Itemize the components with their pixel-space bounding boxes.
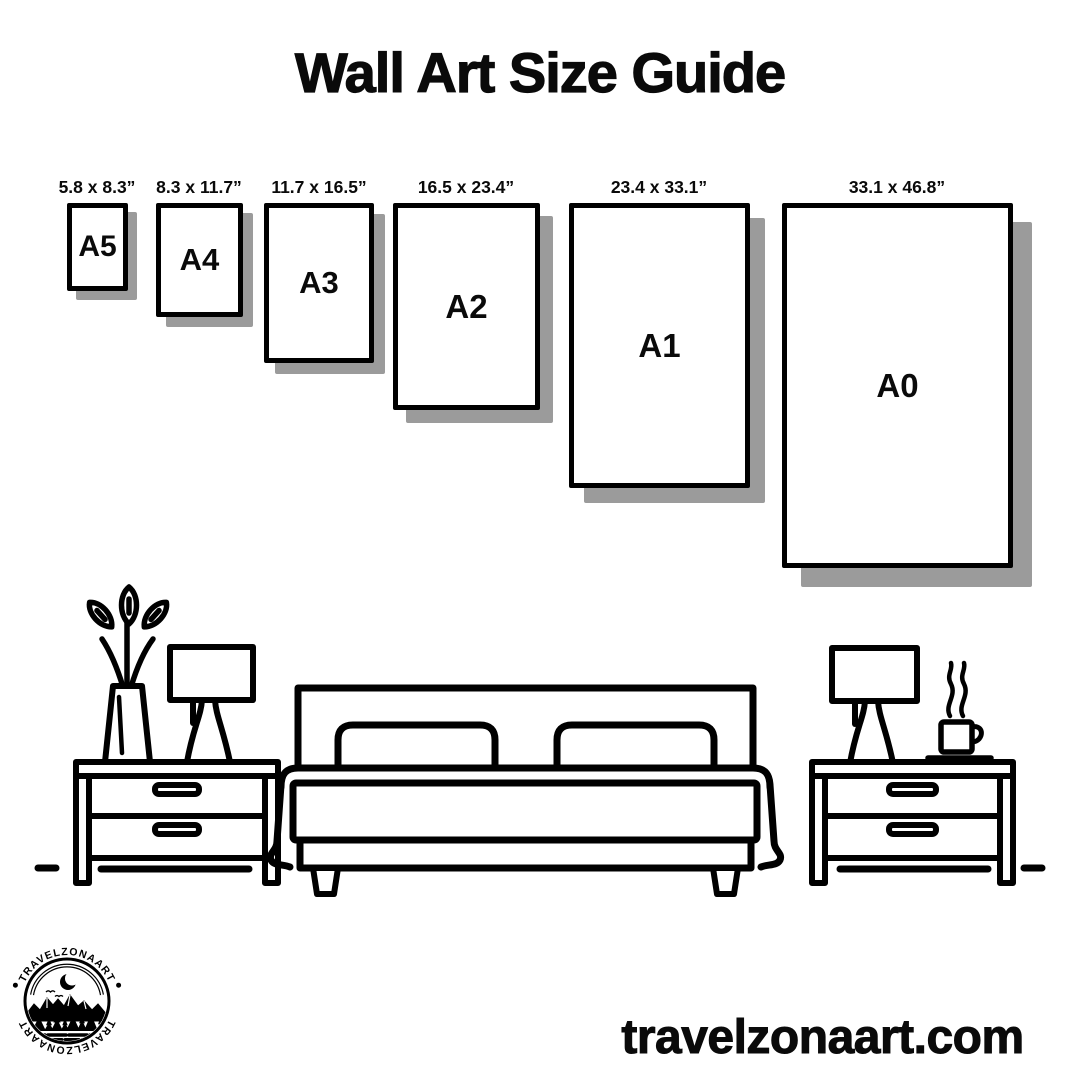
plant-vase-icon	[85, 587, 172, 762]
nightstand-left	[76, 762, 278, 883]
size-code: A1	[638, 327, 680, 365]
size-guide-poster: Wall Art Size Guide 5.8 x 8.3” 8.3 x 11.…	[0, 0, 1080, 1080]
page-title: Wall Art Size Guide	[0, 40, 1080, 105]
paper-box-a3: A3	[264, 203, 374, 363]
size-code: A4	[180, 242, 220, 278]
brand-badge: TRAVELZONAART TRAVELZONAART	[2, 935, 132, 1065]
website-url: travelzonaart.com	[560, 1010, 1080, 1065]
paper-box-a0: A0	[782, 203, 1013, 568]
paper-box-a1: A1	[569, 203, 750, 488]
table-lamp-icon	[832, 648, 917, 763]
paper-box-a2: A2	[393, 203, 540, 410]
double-bed-icon	[270, 688, 780, 894]
dimension-label-a1: 23.4 x 33.1”	[579, 177, 739, 198]
table-lamp-icon	[170, 647, 253, 762]
dimension-label-a2: 16.5 x 23.4”	[386, 177, 546, 198]
dimension-label-a3: 11.7 x 16.5”	[239, 177, 399, 198]
size-code: A5	[78, 230, 116, 264]
badge-dot-right	[116, 983, 121, 988]
dimension-label-a0: 33.1 x 46.8”	[817, 177, 977, 198]
nightstand-right	[812, 762, 1013, 883]
size-code: A0	[876, 367, 918, 405]
size-code: A3	[299, 265, 339, 301]
size-code: A2	[445, 288, 487, 326]
coffee-cup-icon	[928, 663, 991, 758]
bedroom-illustration	[0, 575, 1080, 905]
paper-box-a4: A4	[156, 203, 243, 317]
badge-dot-left	[13, 983, 18, 988]
paper-box-a5: A5	[67, 203, 128, 291]
